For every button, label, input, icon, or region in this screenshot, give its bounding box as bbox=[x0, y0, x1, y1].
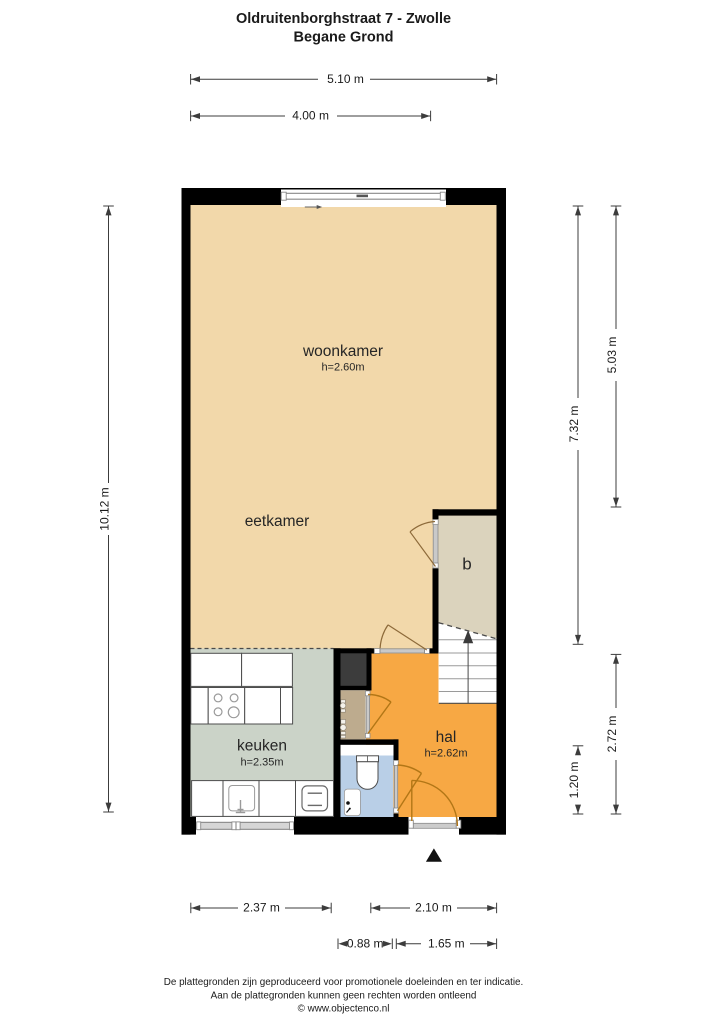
svg-text:4.00 m: 4.00 m bbox=[292, 109, 329, 123]
svg-text:b: b bbox=[462, 555, 471, 574]
svg-text:woonkamer: woonkamer bbox=[302, 343, 383, 360]
svg-text:Begane Grond: Begane Grond bbox=[294, 30, 394, 46]
svg-text:De plattegronden zijn geproduc: De plattegronden zijn geproduceerd voor … bbox=[164, 977, 524, 988]
svg-text:1.65 m: 1.65 m bbox=[428, 937, 465, 951]
svg-text:Oldruitenborghstraat 7 - Zwoll: Oldruitenborghstraat 7 - Zwolle bbox=[236, 11, 451, 27]
svg-text:2.37 m: 2.37 m bbox=[243, 901, 280, 915]
svg-text:keuken: keuken bbox=[237, 738, 287, 755]
svg-text:7.32 m: 7.32 m bbox=[567, 406, 581, 443]
svg-text:5.03 m: 5.03 m bbox=[605, 337, 619, 374]
svg-text:© www.objectenco.nl: © www.objectenco.nl bbox=[298, 1004, 390, 1015]
svg-text:Aan de plattegronden kunnen ge: Aan de plattegronden kunnen geen rechten… bbox=[211, 991, 477, 1002]
svg-text:eetkamer: eetkamer bbox=[245, 513, 310, 530]
svg-text:1.20 m: 1.20 m bbox=[567, 762, 581, 799]
svg-text:h=2.35m: h=2.35m bbox=[240, 757, 283, 769]
svg-text:0.88 m: 0.88 m bbox=[347, 937, 384, 951]
svg-text:10.12 m: 10.12 m bbox=[98, 487, 112, 530]
svg-text:h=2.60m: h=2.60m bbox=[321, 362, 364, 374]
svg-text:hal: hal bbox=[436, 729, 457, 746]
svg-text:5.10 m: 5.10 m bbox=[327, 72, 364, 86]
svg-text:2.72 m: 2.72 m bbox=[605, 716, 619, 753]
svg-text:2.10 m: 2.10 m bbox=[415, 901, 452, 915]
svg-text:h=2.62m: h=2.62m bbox=[424, 748, 467, 760]
